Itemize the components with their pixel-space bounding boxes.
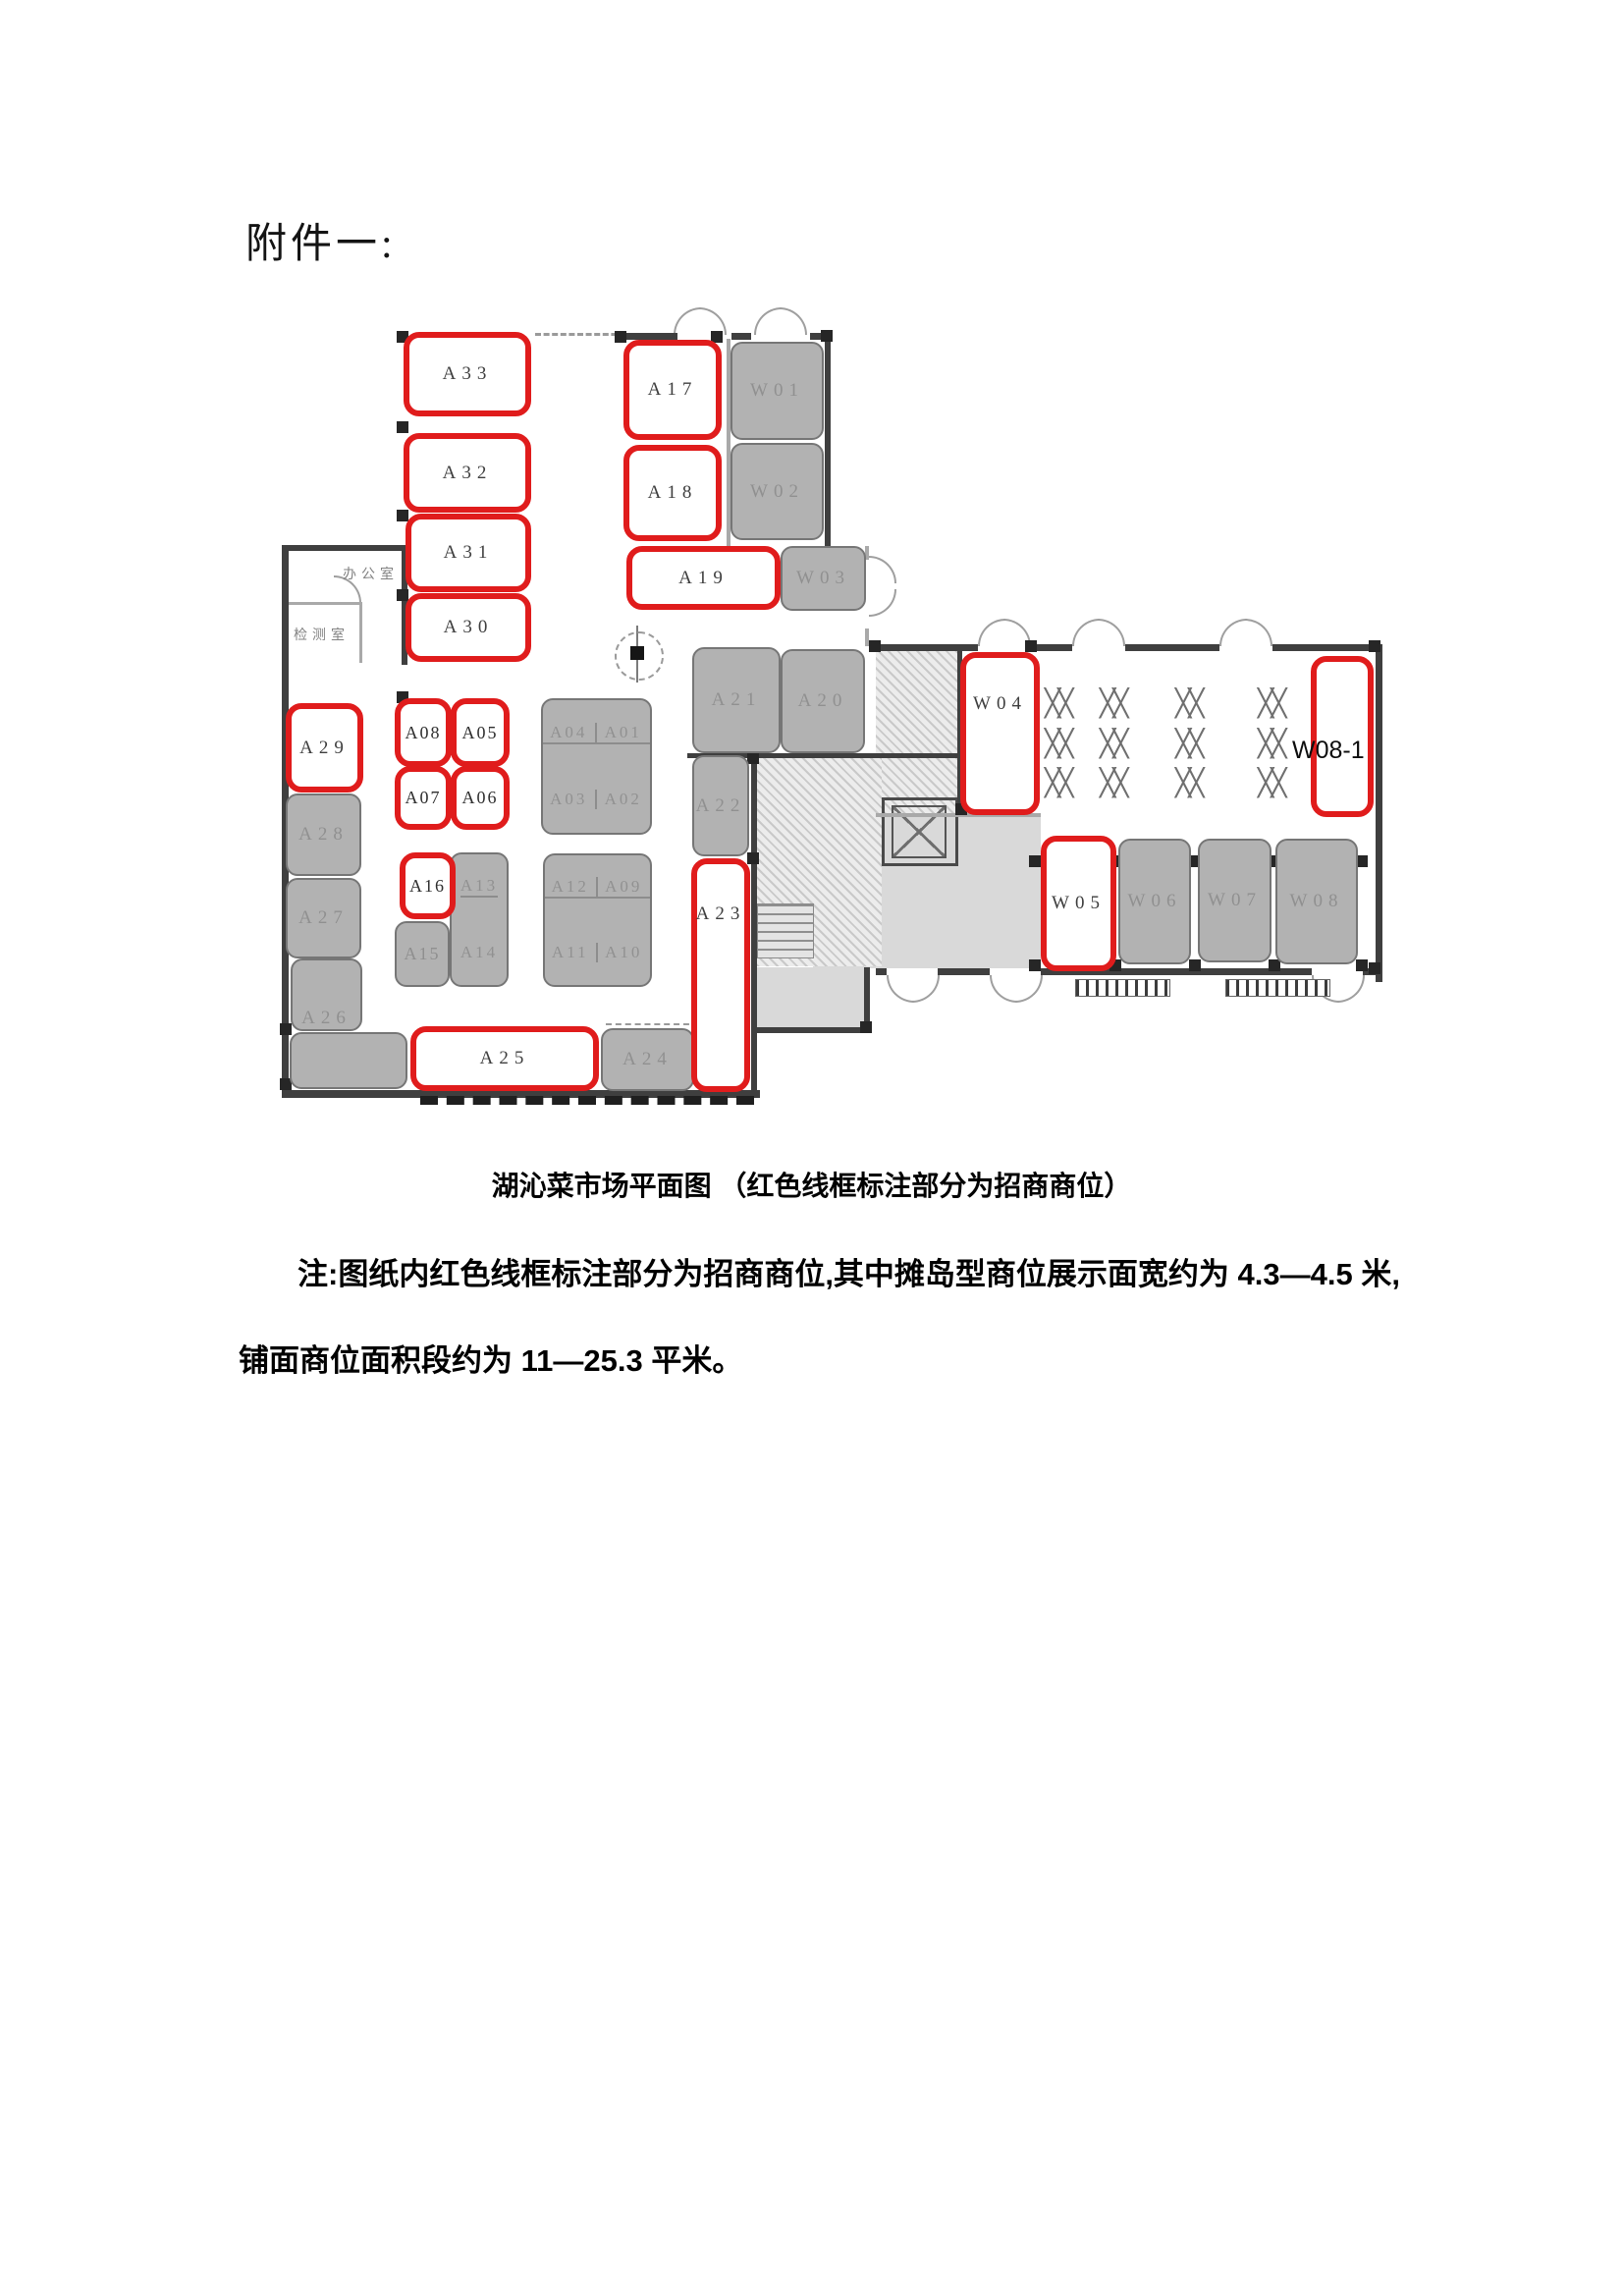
- booth-a20: A20: [781, 649, 865, 753]
- dining-tables-icon: ╳╳: [1100, 728, 1126, 761]
- booth-a14: A14: [460, 943, 498, 962]
- booth-w03: W03: [781, 546, 866, 611]
- column-block: [869, 640, 881, 652]
- column-block: [747, 852, 759, 864]
- booth-a21: A21: [692, 647, 781, 753]
- wall-segment: [751, 758, 757, 1098]
- door-arc: [912, 975, 940, 1003]
- booth-w06: W06: [1118, 839, 1191, 964]
- booth-a11: A11: [545, 943, 598, 962]
- dining-tables-icon: ╳╳: [1175, 767, 1202, 800]
- column-block: [1189, 959, 1201, 971]
- door-arc: [780, 307, 807, 335]
- door-arc: [1072, 619, 1100, 646]
- booth-w07: W07: [1198, 839, 1271, 962]
- booth-unlabeled: [290, 1032, 407, 1089]
- wall-segment: [731, 333, 751, 340]
- door-arc: [869, 589, 896, 617]
- booth-a04: A04: [543, 723, 597, 744]
- booth-block-a12-a09-a11-a10: A12 A09 A11 A10: [543, 853, 652, 987]
- dining-tables-icon: ╳╳: [1258, 767, 1284, 800]
- booth-a17: A17: [623, 340, 722, 440]
- booth-w08: W08: [1275, 839, 1358, 964]
- dining-tables-icon: ╳╳: [1175, 687, 1202, 721]
- booth-block-a04-a01-a03-a02: A04 A01 A03 A02: [541, 698, 652, 835]
- door-arc: [1098, 619, 1125, 646]
- wall-segment: [288, 602, 362, 605]
- booth-a29: A29: [286, 703, 363, 793]
- booth-a27: A27: [286, 878, 361, 958]
- booth-a03: A03: [543, 790, 597, 809]
- column-block: [1369, 962, 1380, 974]
- column-block: [747, 752, 759, 764]
- booth-a15: A15: [395, 921, 450, 987]
- booth-a18: A18: [623, 445, 722, 541]
- wall-segment: [754, 1027, 870, 1033]
- booth-a08: A08: [395, 698, 452, 767]
- booth-a16: A16: [400, 852, 456, 919]
- wall-segment: [1125, 644, 1219, 651]
- booth-a23: A23: [691, 858, 750, 1092]
- column-block: [397, 589, 408, 601]
- note-line-2: 铺面商位面积段约为 11—25.3 平米。: [239, 1336, 742, 1380]
- booth-a09: A09: [598, 877, 651, 899]
- door-arc: [1219, 619, 1247, 646]
- column-block: [1369, 640, 1380, 652]
- wall-segment: [876, 968, 887, 975]
- booth-a31: A31: [406, 514, 531, 592]
- booth-a26: A26: [291, 958, 362, 1031]
- column-block: [280, 1023, 292, 1035]
- column-block: [1029, 855, 1041, 867]
- grille: [1075, 979, 1170, 997]
- door-threshold-ticks: [420, 1096, 754, 1105]
- booth-a28: A28: [286, 793, 361, 876]
- booth-a19: A19: [626, 546, 781, 610]
- dining-tables-icon: ╳╳: [1045, 728, 1071, 761]
- grille: [1225, 979, 1330, 997]
- door-arc: [1015, 975, 1043, 1003]
- floor-area: [754, 967, 870, 1030]
- booth-a25: A25: [410, 1026, 599, 1091]
- column-block: [860, 1021, 872, 1033]
- booth-a30: A30: [406, 593, 531, 662]
- booth-a33: A33: [404, 332, 531, 416]
- wall-segment: [938, 968, 990, 975]
- wall-segment: [1376, 644, 1382, 982]
- dining-tables-icon: ╳╳: [1258, 687, 1284, 721]
- booth-a24: A24: [601, 1028, 694, 1091]
- wall-segment: [825, 333, 831, 555]
- column-block: [1025, 640, 1037, 652]
- office-room-label: 办公室: [343, 564, 399, 583]
- door-arc: [887, 975, 914, 1003]
- wall-segment: [284, 545, 407, 551]
- booth-a32: A32: [404, 433, 531, 513]
- column-block: [615, 331, 626, 343]
- booth-block-a13-a14: A13 A14: [450, 852, 509, 987]
- booth-a01: A01: [597, 723, 651, 744]
- door-arc: [869, 556, 896, 583]
- dining-tables-icon: ╳╳: [1100, 687, 1126, 721]
- wall-segment: [876, 644, 978, 651]
- column-block: [1356, 959, 1368, 971]
- booth-w01: W01: [730, 342, 824, 440]
- inspection-room-label: 检测室: [294, 625, 350, 644]
- column-block: [397, 510, 408, 521]
- booth-a06: A06: [451, 766, 510, 830]
- hatched-zone: [882, 758, 962, 801]
- column-block: [821, 330, 833, 342]
- booth-a22: A22: [692, 755, 749, 856]
- wall-segment: [1272, 644, 1382, 651]
- booth-w08-1-label: W08-1: [1292, 737, 1365, 765]
- door-arc: [754, 307, 782, 335]
- booth-a13: A13: [460, 876, 498, 898]
- booth-a05: A05: [451, 698, 510, 767]
- wall-segment: [359, 602, 362, 663]
- booth-a02: A02: [597, 790, 651, 809]
- dining-tables-icon: ╳╳: [1045, 767, 1071, 800]
- document-page: 附件一:: [0, 0, 1623, 2296]
- stairs: [757, 903, 814, 958]
- dining-tables-icon: ╳╳: [1258, 728, 1284, 761]
- booth-a12: A12: [545, 877, 598, 899]
- door-arc: [978, 619, 1005, 646]
- dining-tables-icon: ╳╳: [1175, 728, 1202, 761]
- booth-a10: A10: [598, 943, 651, 962]
- column-block: [1029, 959, 1041, 971]
- dining-tables-icon: ╳╳: [1100, 767, 1126, 800]
- door-arc: [674, 307, 701, 335]
- door-arc: [990, 975, 1017, 1003]
- wall-dashed: [535, 333, 625, 336]
- door-arc: [1245, 619, 1272, 646]
- compass-icon: [630, 646, 644, 660]
- booth-w05: W05: [1041, 836, 1116, 971]
- booth-w04: W04: [960, 652, 1040, 815]
- figure-caption: 湖沁菜市场平面图 （红色线框标注部分为招商商位）: [0, 1165, 1623, 1204]
- door-arc: [1337, 975, 1365, 1003]
- attachment-heading: 附件一:: [245, 210, 397, 270]
- dining-tables-icon: ╳╳: [1045, 687, 1071, 721]
- note-line-1: 注:图纸内红色线框标注部分为招商商位,其中摊岛型商位展示面宽约为 4.3—4.5…: [298, 1249, 1400, 1293]
- booth-a07: A07: [395, 766, 452, 830]
- column-block: [397, 421, 408, 433]
- booth-w02: W02: [730, 443, 824, 540]
- wall-segment: [619, 333, 677, 340]
